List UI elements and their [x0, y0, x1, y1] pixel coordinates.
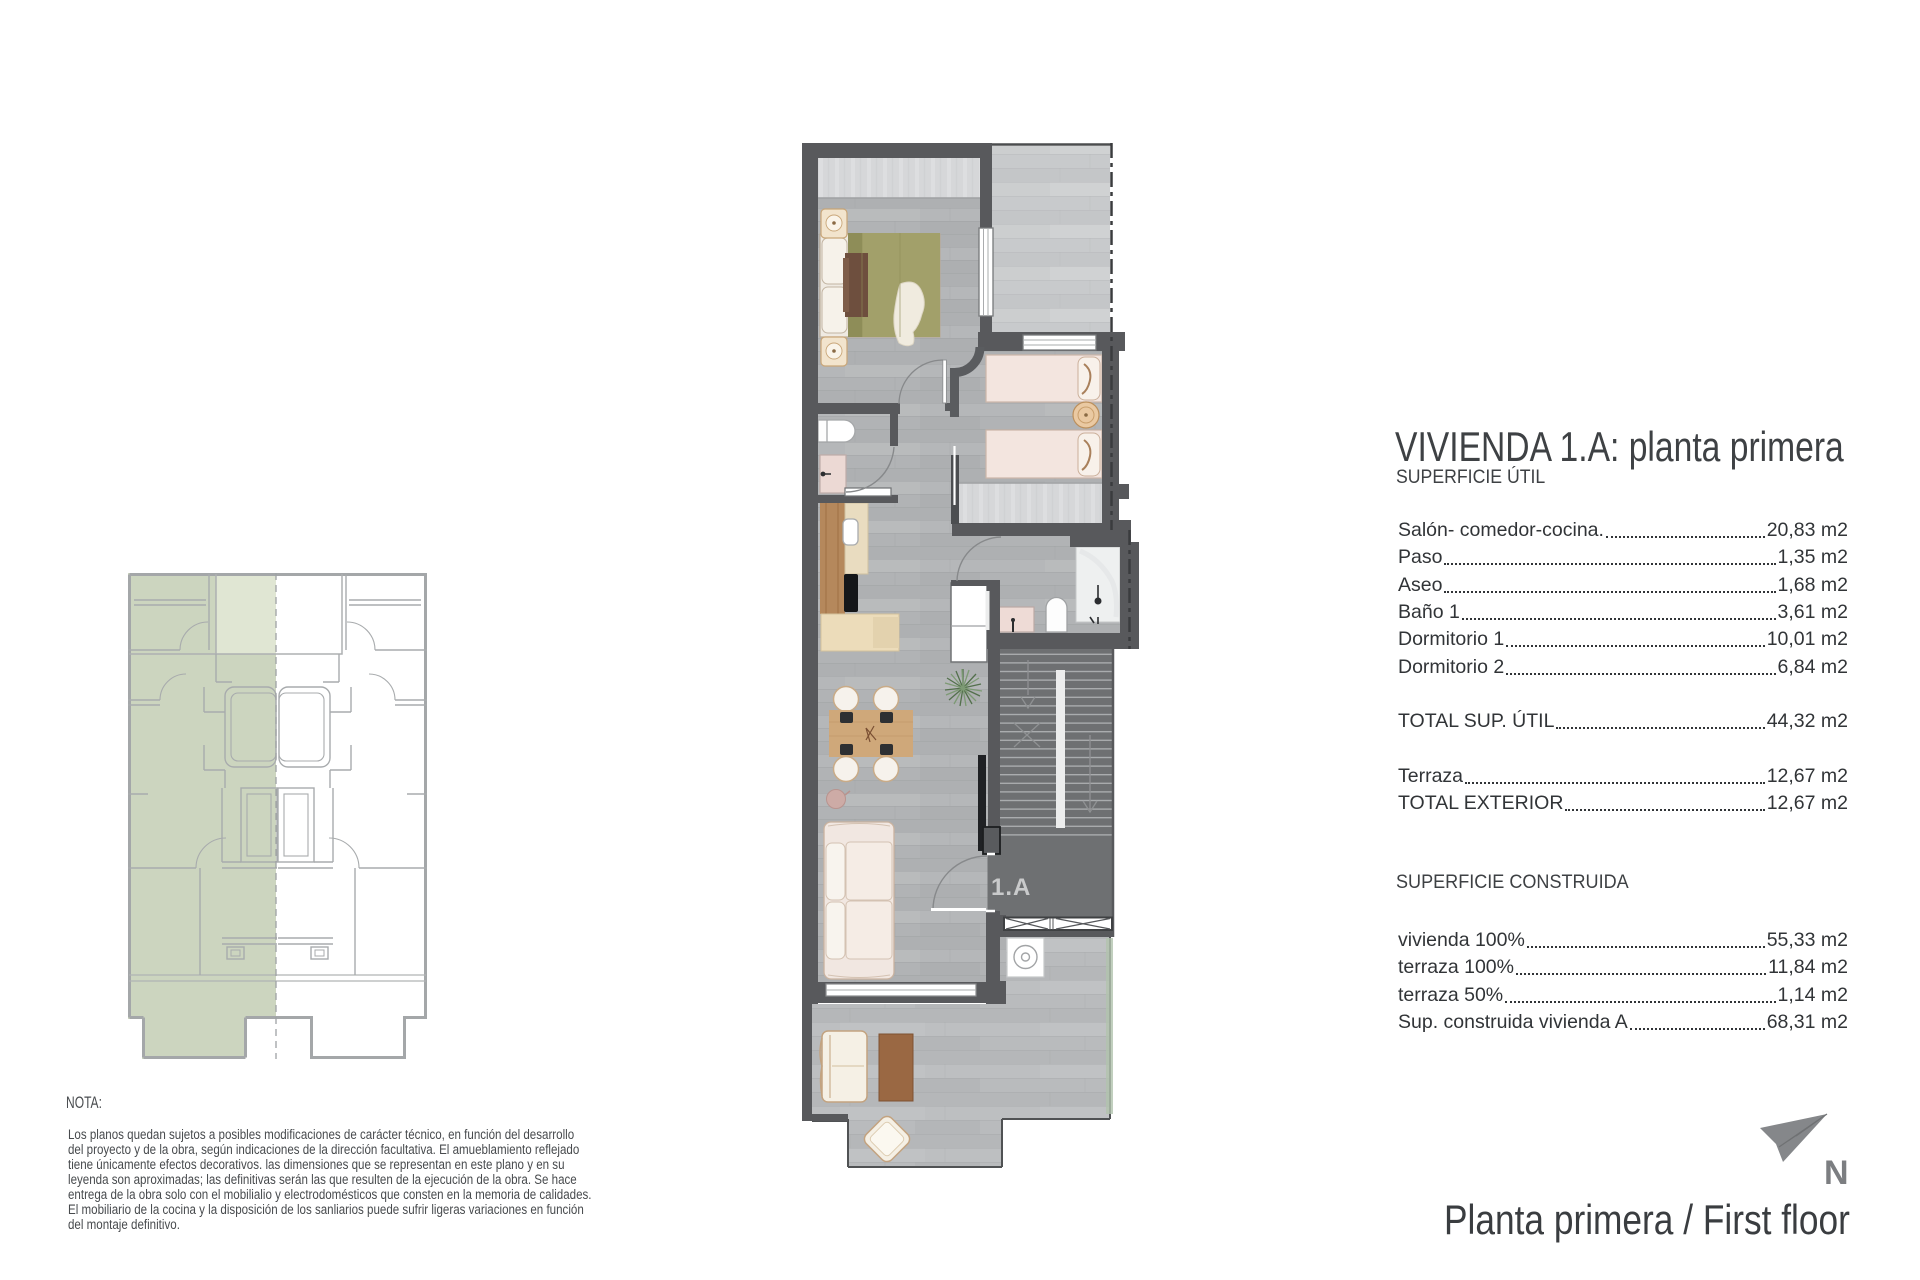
svg-text:N: N: [1824, 1154, 1849, 1192]
svg-text:1.A: 1.A: [991, 874, 1031, 901]
